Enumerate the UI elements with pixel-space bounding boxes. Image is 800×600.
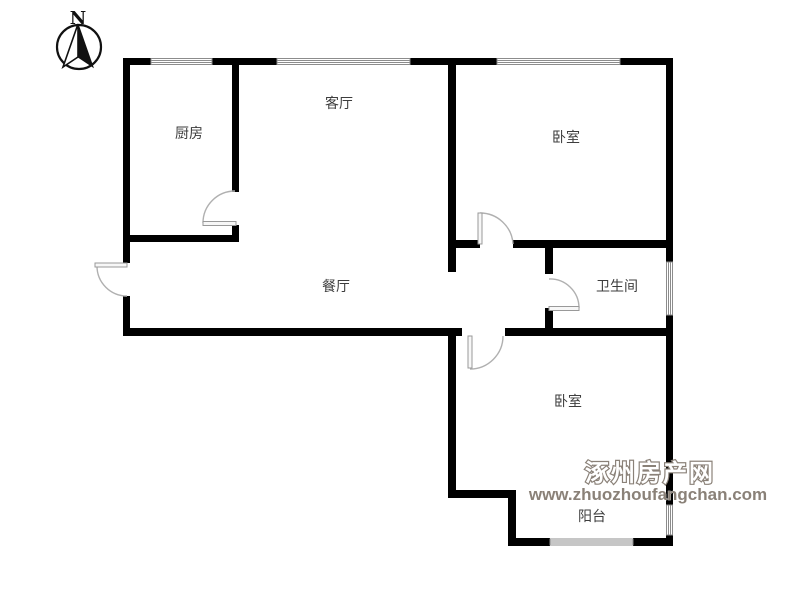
- wall: [508, 538, 550, 546]
- floor-plan-drawing: N 厨房 客厅 卧室 餐厅 卫生间 卧室 阳台 涿州房产网 www.zhuozh…: [0, 0, 800, 600]
- wall: [123, 328, 462, 336]
- door-kitchen: [203, 191, 236, 226]
- wall: [448, 58, 456, 272]
- wall: [212, 58, 277, 65]
- label-kitchen: 厨房: [175, 125, 203, 141]
- window-bathroom: [667, 262, 673, 315]
- wall: [448, 240, 480, 248]
- watermark: 涿州房产网 www.zhuozhoufangchan.com: [528, 459, 767, 504]
- label-living: 客厅: [325, 95, 353, 111]
- wall: [633, 538, 673, 546]
- wall: [620, 58, 673, 65]
- wall: [448, 490, 516, 498]
- door-bedroom-top: [478, 213, 513, 244]
- door-bathroom: [549, 279, 579, 311]
- wall: [508, 497, 516, 545]
- window-bedroom-top: [497, 59, 620, 65]
- wall: [505, 328, 673, 336]
- window-balcony-bottom: [550, 539, 633, 545]
- door-entry: [95, 263, 127, 296]
- wall: [123, 58, 130, 263]
- floor-plan-canvas: N 厨房 客厅 卧室 餐厅 卫生间 卧室 阳台 涿州房产网 www.zhuozh…: [0, 0, 800, 600]
- label-bathroom: 卫生间: [596, 278, 638, 294]
- window-kitchen: [151, 59, 212, 65]
- label-bedroom-bottom: 卧室: [554, 393, 582, 409]
- wall: [232, 58, 239, 192]
- window-living: [277, 59, 410, 65]
- wall: [545, 308, 553, 336]
- wall: [545, 248, 553, 274]
- wall: [513, 240, 673, 248]
- north-compass: N: [57, 8, 101, 69]
- wall: [123, 235, 239, 242]
- compass-needle-right: [78, 24, 93, 67]
- label-bedroom-top: 卧室: [552, 129, 580, 145]
- wall: [666, 58, 673, 262]
- wall: [448, 336, 456, 498]
- door-bedroom-bottom: [468, 336, 503, 369]
- label-dining: 餐厅: [322, 278, 350, 294]
- window-balcony-side: [667, 505, 673, 535]
- label-balcony: 阳台: [578, 508, 606, 524]
- watermark-site-name: 涿州房产网: [585, 459, 715, 487]
- watermark-site-url: www.zhuozhoufangchan.com: [528, 485, 767, 504]
